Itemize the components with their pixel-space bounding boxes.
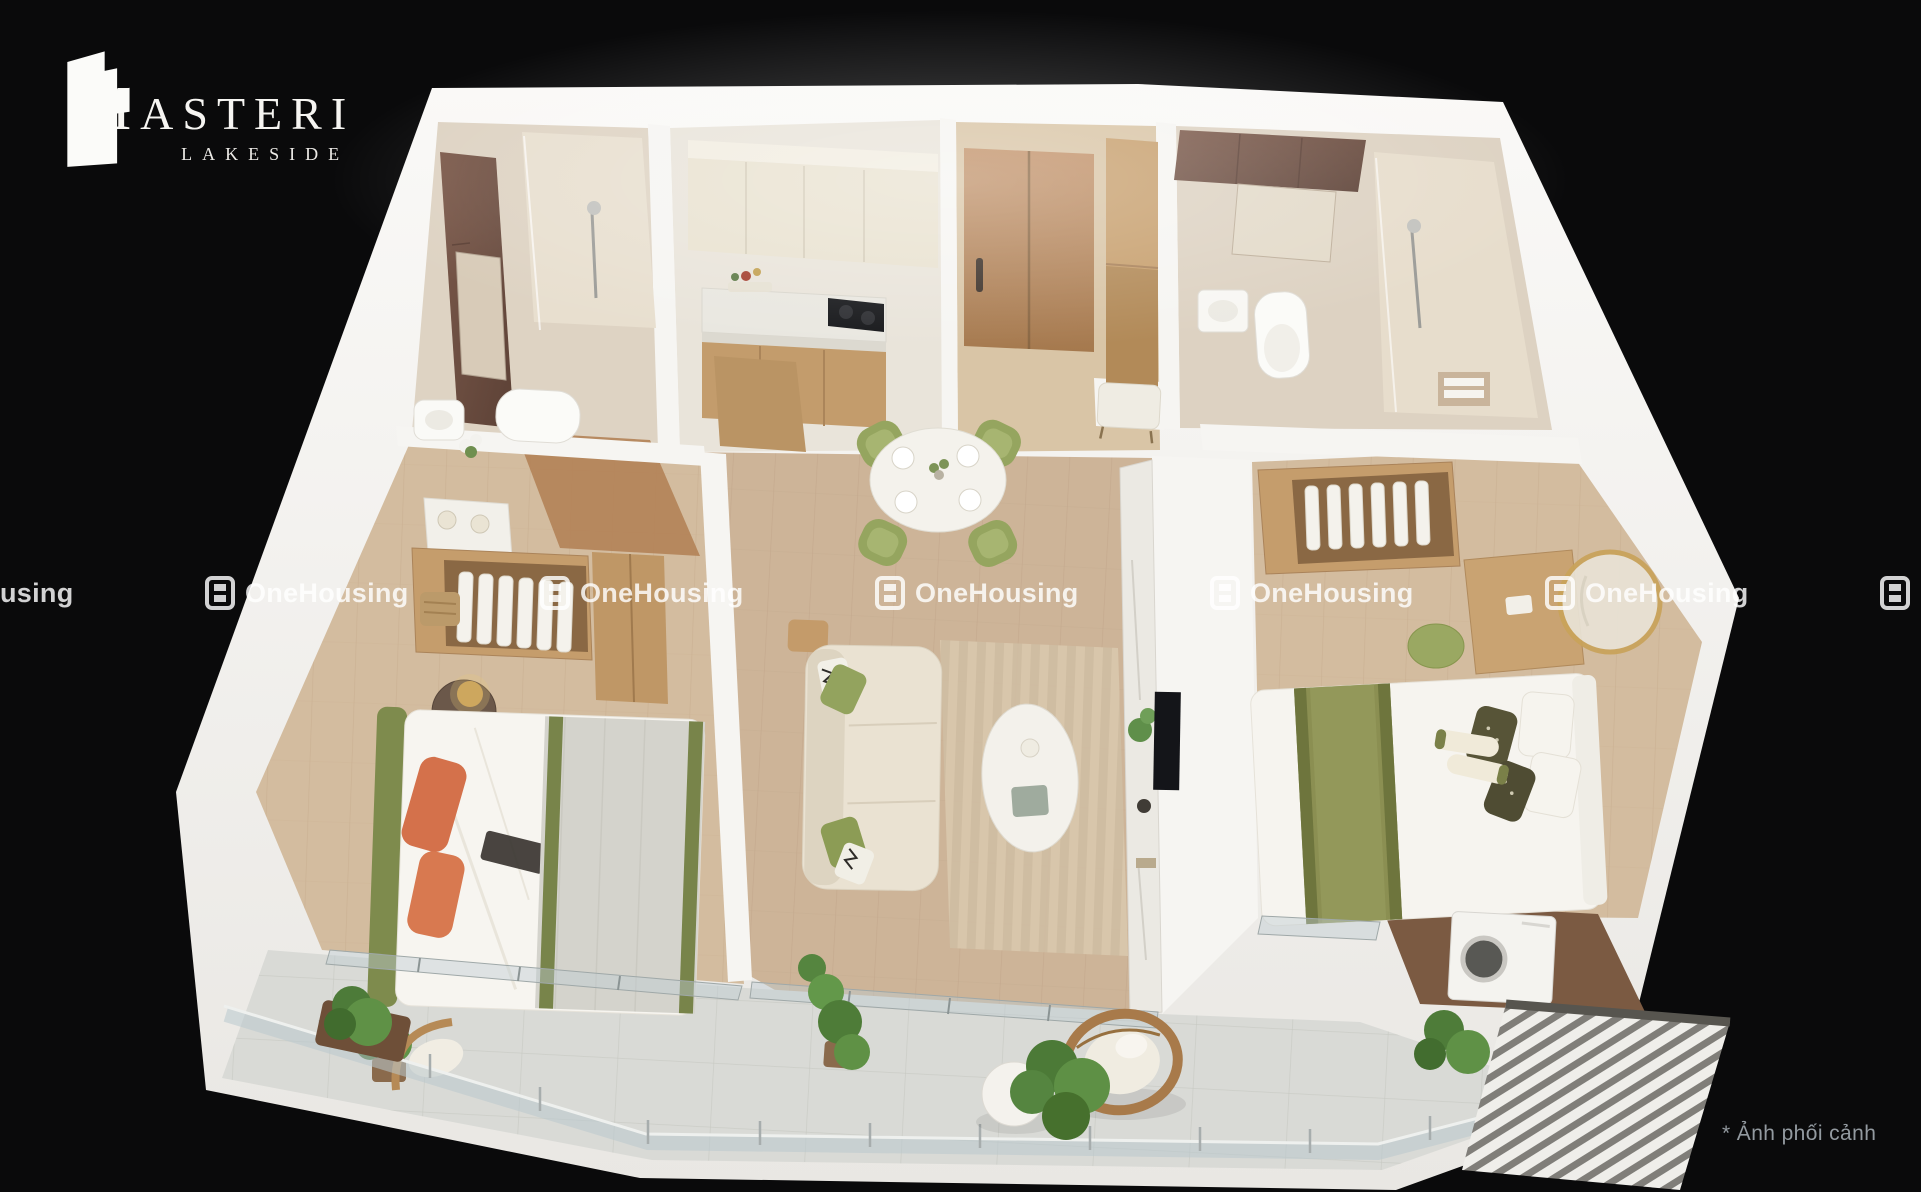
- white-pillow: [1518, 691, 1575, 759]
- bottle: [731, 273, 739, 281]
- dining-table: [870, 428, 1006, 532]
- vanity-stool: [1408, 624, 1464, 668]
- television: [1153, 692, 1181, 790]
- sofa: [802, 645, 942, 891]
- shower-area: [522, 132, 656, 328]
- washing-machine: [1448, 911, 1556, 1004]
- louver-screen: [1462, 1004, 1730, 1190]
- bottle: [753, 268, 761, 276]
- brand-logo: MASTERI LAKESIDE: [62, 44, 355, 165]
- flower-vase: [465, 446, 477, 458]
- shower-head: [587, 201, 601, 215]
- plate: [892, 447, 914, 469]
- bathroom-mirror: [456, 252, 506, 380]
- plate: [957, 445, 979, 467]
- bathroom-mirror: [1232, 184, 1336, 262]
- round-mirror: [1560, 552, 1660, 652]
- floor-plan-render: [0, 0, 1921, 1192]
- plate: [895, 491, 917, 513]
- plate: [959, 489, 981, 511]
- upper-cabinets-front: [688, 158, 938, 268]
- table-vase: [934, 470, 944, 480]
- render-disclaimer: * Ảnh phối cảnh: [1722, 1122, 1876, 1146]
- bottle: [741, 271, 751, 281]
- sculpture: [1137, 799, 1151, 813]
- table-lamp: [457, 681, 483, 707]
- bed-2: [1250, 673, 1608, 927]
- floor-plan-stage: MASTERI LAKESIDE OneHousing OneHousing O…: [0, 0, 1921, 1192]
- door-handle: [976, 258, 983, 292]
- toilet: [495, 388, 582, 444]
- towel-niche: [1438, 372, 1490, 406]
- masteri-building-icon: [62, 44, 142, 176]
- kitchen-island: [714, 356, 806, 452]
- shower-head: [1407, 219, 1421, 233]
- storage-basket: [420, 592, 460, 626]
- cooktop: [828, 298, 884, 332]
